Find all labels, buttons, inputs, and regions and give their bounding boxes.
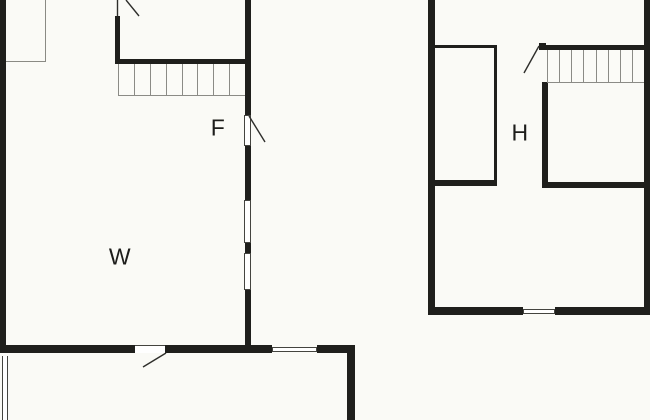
right-plan-west-wall xyxy=(428,0,435,315)
stair-tread xyxy=(548,50,560,82)
stair-tread xyxy=(214,64,230,95)
left-plan-stair-west-wall xyxy=(115,16,120,64)
closet-south-wall xyxy=(428,180,497,186)
stair-tread xyxy=(609,50,621,82)
window-right-plan-south xyxy=(523,309,555,314)
stair-tread xyxy=(597,50,609,82)
window-east-lower xyxy=(244,253,251,290)
stair-tread xyxy=(572,50,584,82)
stair-tread xyxy=(198,64,214,95)
cabinet-fixture-outline xyxy=(6,0,46,62)
left-plan-east-wall-lower xyxy=(245,290,251,353)
stair-tread xyxy=(621,50,633,82)
stairwell-door-stub xyxy=(539,43,546,50)
right-plan-south-wall-east-segment xyxy=(555,307,650,315)
stair-tread xyxy=(119,64,135,95)
left-plan-east-wall-mid xyxy=(245,146,251,200)
stairwell-west-wall xyxy=(542,82,548,188)
window-lower-room-west xyxy=(2,356,8,420)
left-plan-south-wall-mid-segment xyxy=(165,345,272,353)
stair-tread xyxy=(584,50,596,82)
door-swing-icon xyxy=(126,0,139,16)
stair-tread xyxy=(183,64,199,95)
door-swing-icon xyxy=(143,353,166,367)
right-plan-staircase xyxy=(547,50,644,83)
left-plan-east-wall-upper xyxy=(245,0,251,115)
door-swing-icon xyxy=(524,46,539,73)
stair-tread xyxy=(135,64,151,95)
left-plan-south-wall-west-segment xyxy=(0,345,135,353)
left-plan-east-wall-stub xyxy=(245,243,251,253)
stairwell-south-wall xyxy=(543,182,650,188)
right-plan-south-wall-west-segment xyxy=(428,307,523,315)
left-plan-staircase xyxy=(118,64,245,96)
lower-room-east-wall xyxy=(347,345,355,420)
door-f-opening xyxy=(244,115,251,146)
floor-plan-canvas: F W H xyxy=(0,0,650,420)
stair-tread xyxy=(167,64,183,95)
window-south-wall xyxy=(272,347,317,352)
stair-tread xyxy=(151,64,167,95)
stair-tread xyxy=(230,64,245,95)
closet-east-wall xyxy=(494,45,497,186)
room-label-f: F xyxy=(211,115,226,142)
closet-north-wall xyxy=(435,45,497,48)
room-label-h: H xyxy=(511,120,528,147)
door-w-opening xyxy=(135,345,165,353)
window-east-upper xyxy=(244,200,251,243)
stair-tread xyxy=(633,50,644,82)
room-label-w: W xyxy=(109,244,131,271)
door-swing-icon xyxy=(249,116,265,142)
stair-tread xyxy=(560,50,572,82)
